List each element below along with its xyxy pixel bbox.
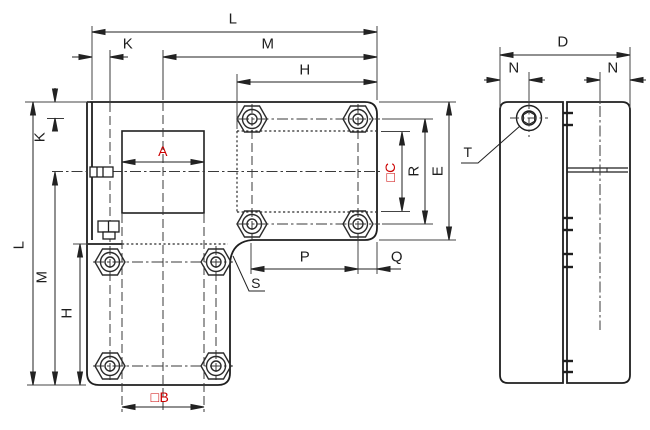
ref-label-T: T: [463, 145, 472, 159]
dim-label-N-right: N: [607, 61, 618, 76]
dim-label-H-left: H: [60, 307, 75, 318]
dim-label-C: □C: [383, 162, 397, 182]
dim-label-B: □B: [151, 390, 170, 404]
ref-label-S: S: [251, 276, 261, 290]
dim-label-A: A: [158, 144, 168, 158]
dim-label-R: R: [407, 165, 422, 176]
top-view-outline: [87, 102, 377, 385]
dim-label-D: D: [557, 35, 568, 50]
dim-label-M-left: M: [35, 271, 50, 284]
gap-retainer-marks: [563, 112, 573, 373]
dim-label-N-left: N: [508, 61, 519, 76]
grease-nipple-icon: [90, 167, 113, 177]
dim-label-K-left: K: [33, 132, 48, 143]
dimension-lines: [31, 30, 647, 410]
dim-label-E: E: [431, 166, 446, 177]
side-view-centerlines: [510, 100, 600, 330]
dim-label-Q: Q: [391, 250, 403, 265]
drawing-canvas: [0, 0, 650, 430]
dim-label-K-top: K: [123, 37, 134, 52]
set-screw-icon: [98, 221, 119, 239]
technical-drawing-page: L K M H L K M H A □B □C R E P Q S T D N …: [0, 0, 650, 430]
dim-label-P: P: [300, 250, 311, 265]
hex-bolts: [95, 106, 373, 379]
dim-label-L-top: L: [229, 12, 238, 27]
dim-label-H-top: H: [299, 63, 310, 78]
center-lines: [47, 50, 380, 412]
side-view-outline: [500, 102, 630, 383]
dim-label-M-top: M: [262, 37, 275, 52]
dim-label-L-left: L: [12, 241, 27, 250]
